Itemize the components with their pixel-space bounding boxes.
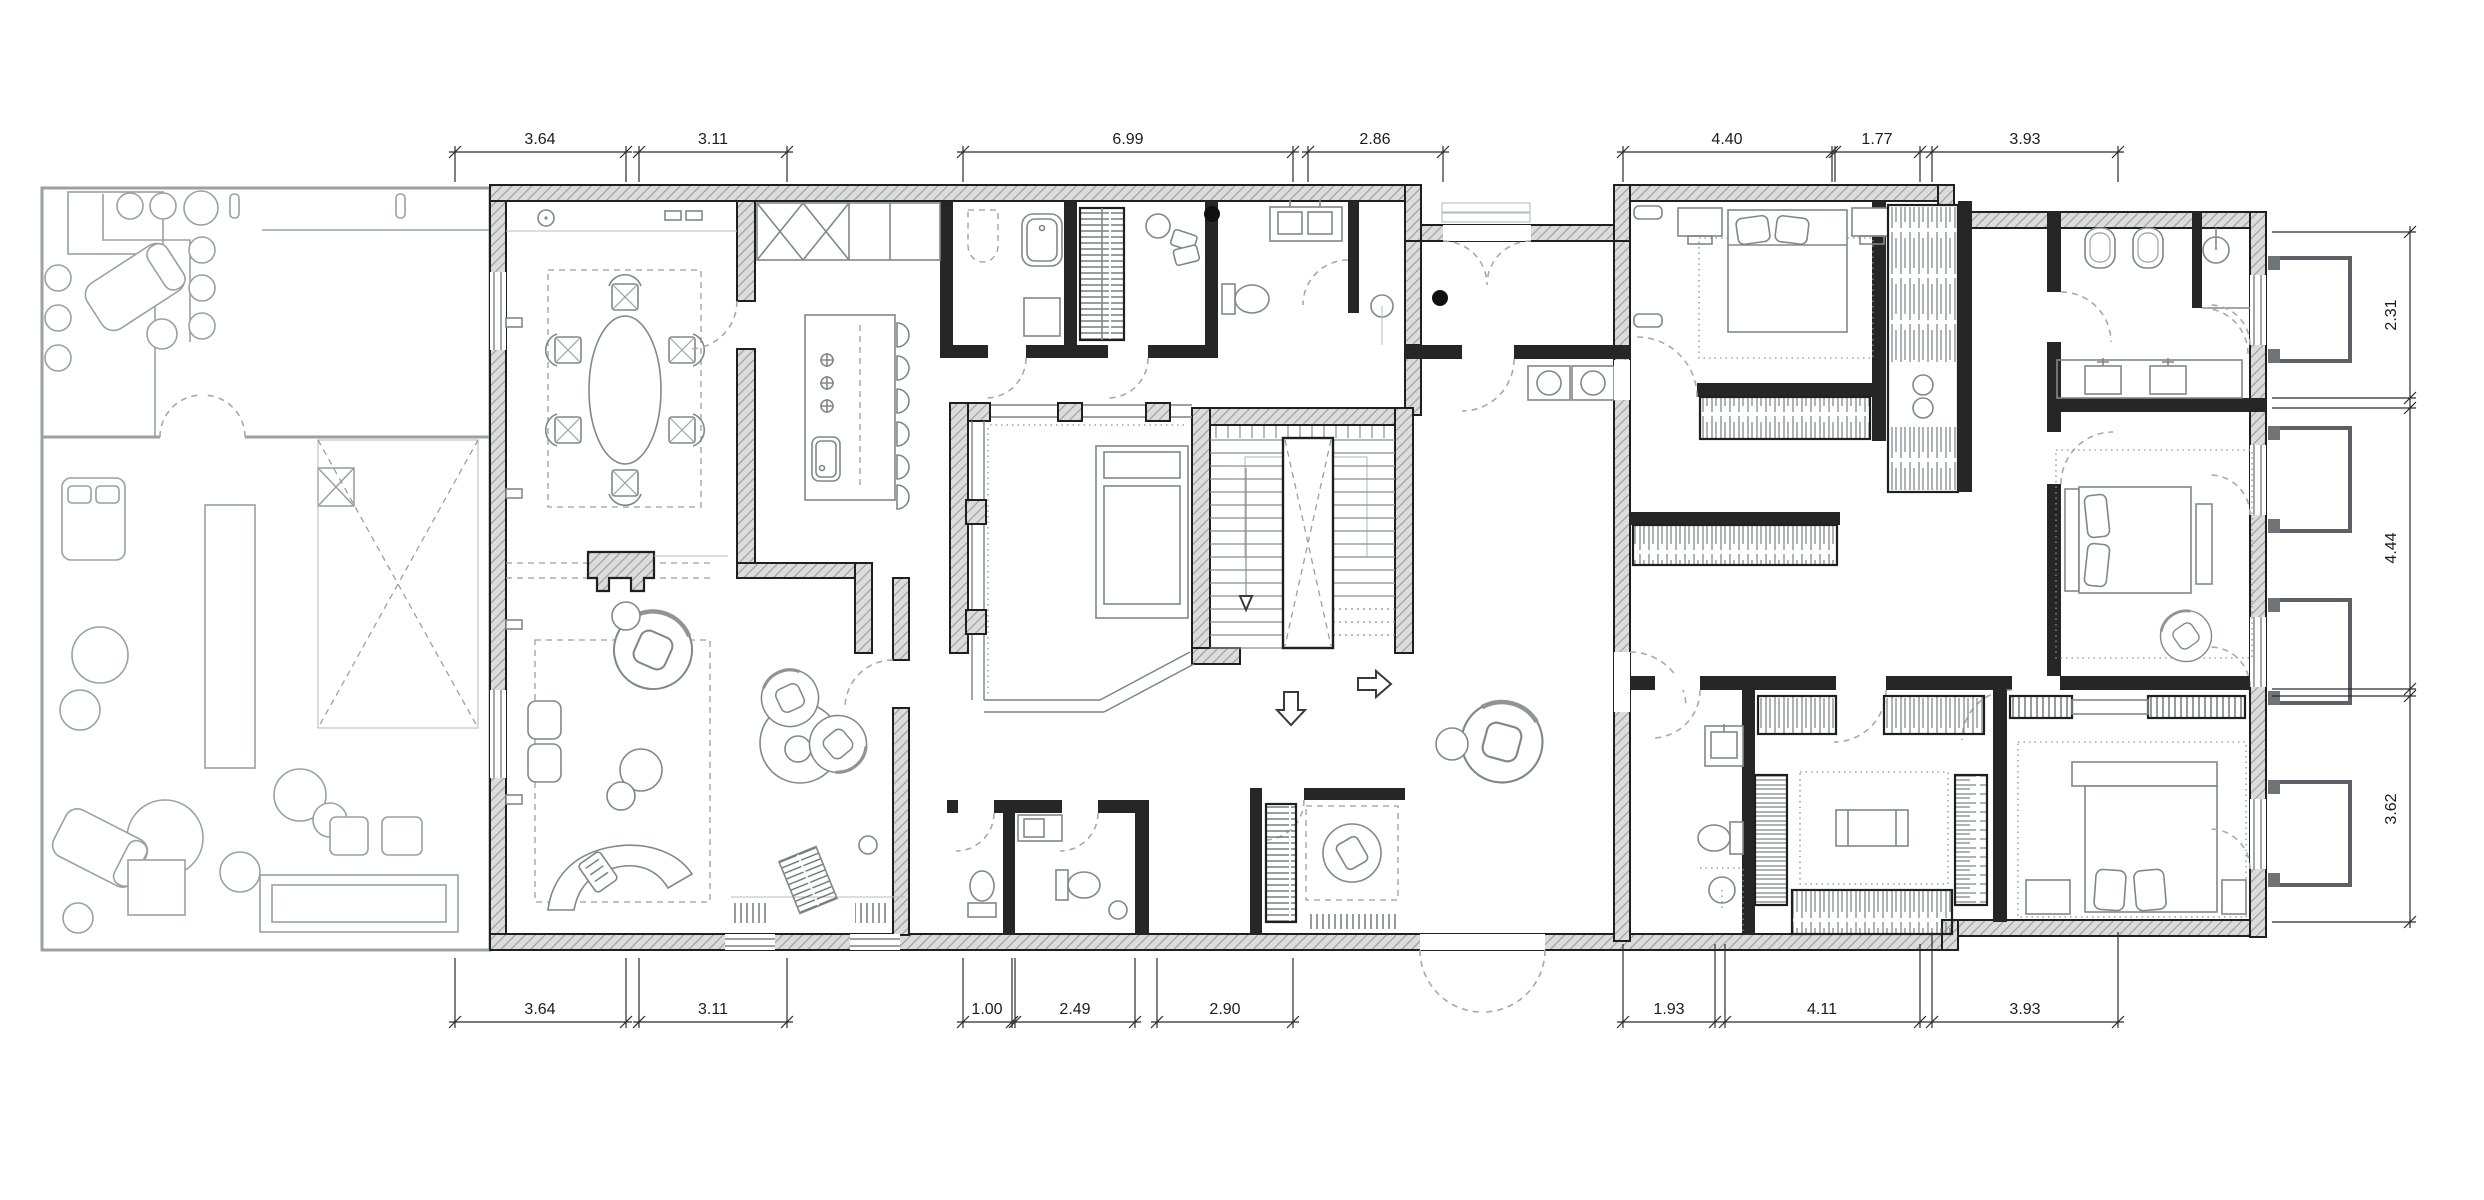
bed-head-bench	[2072, 762, 2217, 786]
wall-top-left-block	[490, 185, 1405, 201]
dim-top-5: 1.77	[1861, 131, 1892, 148]
corridor-wardrobe	[1633, 525, 1837, 565]
dim-top-1: 3.11	[698, 131, 728, 148]
toilet	[1698, 825, 1730, 851]
laundry-room	[1077, 201, 1220, 398]
dim-bottom-0: 3.64	[524, 1001, 555, 1018]
balcony-2	[2268, 426, 2350, 533]
bedroom-2	[2047, 412, 2252, 690]
shower-tray	[1024, 298, 1060, 336]
balconies	[2268, 256, 2350, 887]
wall-top-right-wing	[1630, 185, 1950, 201]
staircase	[1210, 426, 1395, 725]
clothes-icon	[1170, 229, 1200, 266]
toilet-ghost	[968, 210, 998, 262]
cooktop	[820, 353, 834, 413]
annex-wing	[42, 188, 490, 950]
exit-arrow-right	[1358, 671, 1391, 697]
annex-double-door	[160, 395, 245, 437]
entry-double-door	[1443, 241, 1531, 285]
curtain-mark	[1306, 914, 1398, 930]
dining-door	[689, 301, 737, 349]
balcony-4	[2268, 780, 2350, 887]
dim-bottom-5: 1.93	[1653, 1001, 1684, 1018]
dim-right-2: 3.62	[2383, 793, 2400, 824]
bathroom-3	[1698, 690, 1755, 935]
wall-hung-toilet	[2085, 228, 2115, 268]
courtyard-bedroom	[966, 403, 1194, 712]
master-bathroom	[2047, 212, 2266, 412]
dim-bottom-1: 3.11	[698, 1001, 728, 1018]
balcony-1	[2268, 256, 2350, 363]
closet-bottom-wardrobe	[1792, 890, 1952, 934]
dim-bottom-2: 1.00	[971, 1001, 1002, 1018]
dim-right: 2.31 4.44 3.62	[2272, 226, 2416, 928]
top-bathroom	[950, 201, 1077, 398]
bedroom-1	[1634, 201, 1894, 441]
dining-table	[589, 316, 661, 464]
dim-top-0: 3.64	[524, 131, 555, 148]
console-piano	[588, 552, 654, 591]
dim-top-2: 6.99	[1112, 131, 1143, 148]
dim-top: 3.64 3.11 6.99 2.86 4.40 1.77 3.93	[449, 131, 2124, 182]
lounge-wardrobe	[1266, 804, 1296, 922]
shelf-band	[2010, 696, 2072, 718]
courtyard-bed	[1096, 446, 1188, 618]
bedroom1-wardrobe	[1700, 397, 1870, 439]
plumbing-stack	[1204, 206, 1220, 222]
closet-island	[1836, 810, 1908, 846]
dim-top-3: 2.86	[1359, 131, 1390, 148]
basin	[1109, 901, 1127, 919]
angled-glass-wall	[1100, 652, 1194, 712]
bedroom2-armchair	[2150, 600, 2221, 671]
wall-bottom	[490, 934, 1942, 950]
nightstand	[1678, 208, 1722, 236]
curtain-mark	[733, 903, 767, 923]
kitchen	[757, 203, 940, 509]
stair-direction-arrow	[1240, 596, 1252, 610]
family-room	[752, 660, 893, 913]
dim-right-0: 2.31	[2383, 299, 2400, 330]
toilet	[970, 871, 994, 901]
dim-bottom-6: 4.11	[1807, 1001, 1837, 1018]
wall-hung-bidet	[2133, 228, 2163, 268]
nightstand	[2222, 880, 2246, 914]
pouf	[528, 701, 561, 739]
nightstand	[2026, 880, 2070, 914]
bed-bench	[2196, 504, 2212, 584]
wall-bottom-right	[1942, 920, 2266, 936]
bedroom-3	[2010, 696, 2250, 917]
annex-island-table	[205, 505, 255, 768]
striped-bench	[779, 847, 837, 914]
dim-bottom-3: 2.49	[1059, 1001, 1090, 1018]
floor-plan-canvas: 3.64 3.11 6.99 2.86 4.40 1.77 3.93 3.64 …	[0, 0, 2484, 1200]
elevator-shaft	[1283, 438, 1333, 648]
shelf-band	[2148, 696, 2245, 718]
main-entrance-doors	[1420, 950, 1545, 1012]
curtain-mark	[855, 903, 889, 923]
annex-bench	[260, 875, 458, 932]
toilet	[1068, 872, 1100, 898]
wc-toilet	[1235, 285, 1269, 313]
annex-side-table	[147, 319, 177, 349]
annex-lower-zone	[48, 440, 478, 933]
stair-core-top-wall	[1192, 408, 1413, 425]
dim-top-6: 3.93	[2009, 131, 2040, 148]
walk-in-closet	[1755, 690, 2007, 934]
column-marker	[1432, 290, 1448, 306]
annex-void-x	[318, 440, 478, 728]
curved-sofa	[548, 845, 692, 910]
floor-plan-page: 3.64 3.11 6.99 2.86 4.40 1.77 3.93 3.64 …	[0, 0, 2484, 1200]
dim-top-4: 4.40	[1711, 131, 1742, 148]
pouf	[528, 744, 561, 782]
dim-bottom-4: 2.90	[1209, 1001, 1240, 1018]
dim-bottom-7: 3.93	[2009, 1001, 2040, 1018]
music-lounge	[1250, 788, 1405, 935]
dim-right-1: 4.44	[2383, 532, 2400, 563]
exit-arrow-down	[1277, 692, 1305, 725]
bottom-bathrooms	[947, 800, 1149, 935]
annex-closet	[68, 192, 163, 254]
